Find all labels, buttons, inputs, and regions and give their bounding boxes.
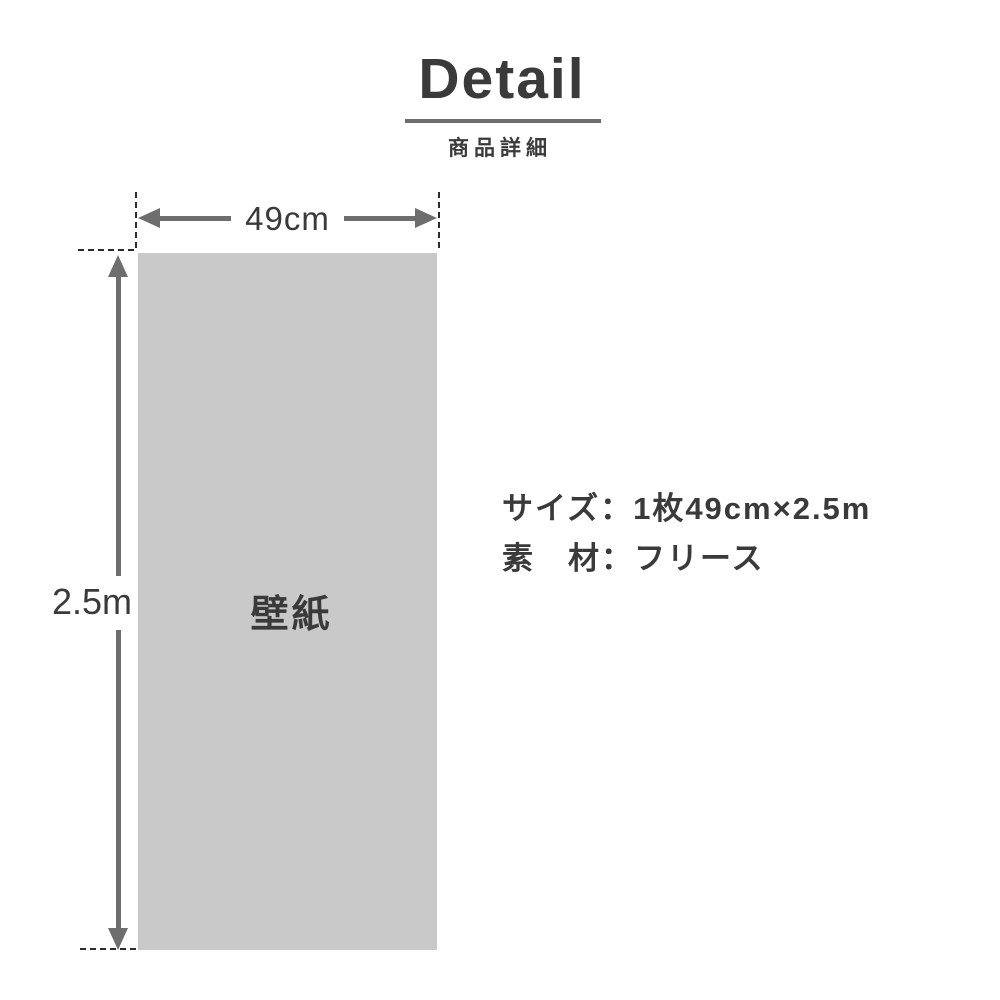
spec-size-separator: ：	[600, 491, 633, 526]
spec-material-value: フリース	[634, 541, 764, 576]
spec-list: サイズ：1枚49cm×2.5m 素 材：フリース	[502, 484, 871, 584]
height-dimension-line	[116, 630, 121, 929]
guide-dashed-line-top-right	[438, 192, 440, 250]
arrow-left-icon	[138, 208, 160, 228]
height-dimension-line	[116, 277, 121, 576]
arrow-right-icon	[415, 208, 437, 228]
title-underline	[405, 119, 601, 123]
guide-dashed-line-top-left	[135, 192, 137, 250]
width-dimension-line	[344, 216, 415, 221]
wallpaper-panel: 壁紙	[138, 253, 437, 950]
header: Detail	[0, 48, 1000, 111]
spec-size-value: 1枚49cm×2.5m	[633, 491, 871, 526]
spec-row-size: サイズ：1枚49cm×2.5m	[502, 484, 871, 534]
height-dimension-label: 2.5m	[52, 582, 130, 622]
arrow-up-icon	[108, 255, 128, 277]
spec-size-label: サイズ	[502, 491, 600, 526]
page-title: Detail	[418, 48, 585, 111]
arrow-down-icon	[108, 928, 128, 950]
product-detail-page: Detail 商品詳細 壁紙 49cm 2.5m サイズ：1枚49cm×2.5m…	[0, 0, 1000, 1000]
guide-dashed-line-left-lower	[80, 948, 140, 950]
spec-row-material: 素 材：フリース	[502, 534, 871, 584]
width-dimension-label: 49cm	[245, 202, 330, 235]
spec-material-separator: ：	[601, 541, 634, 576]
page-subtitle: 商品詳細	[0, 132, 1000, 162]
wallpaper-panel-label: 壁紙	[250, 583, 332, 638]
width-dimension: 49cm	[138, 206, 437, 230]
guide-dashed-line-left-upper	[78, 249, 136, 251]
spec-material-label: 素 材	[502, 541, 601, 576]
width-dimension-line	[160, 216, 231, 221]
